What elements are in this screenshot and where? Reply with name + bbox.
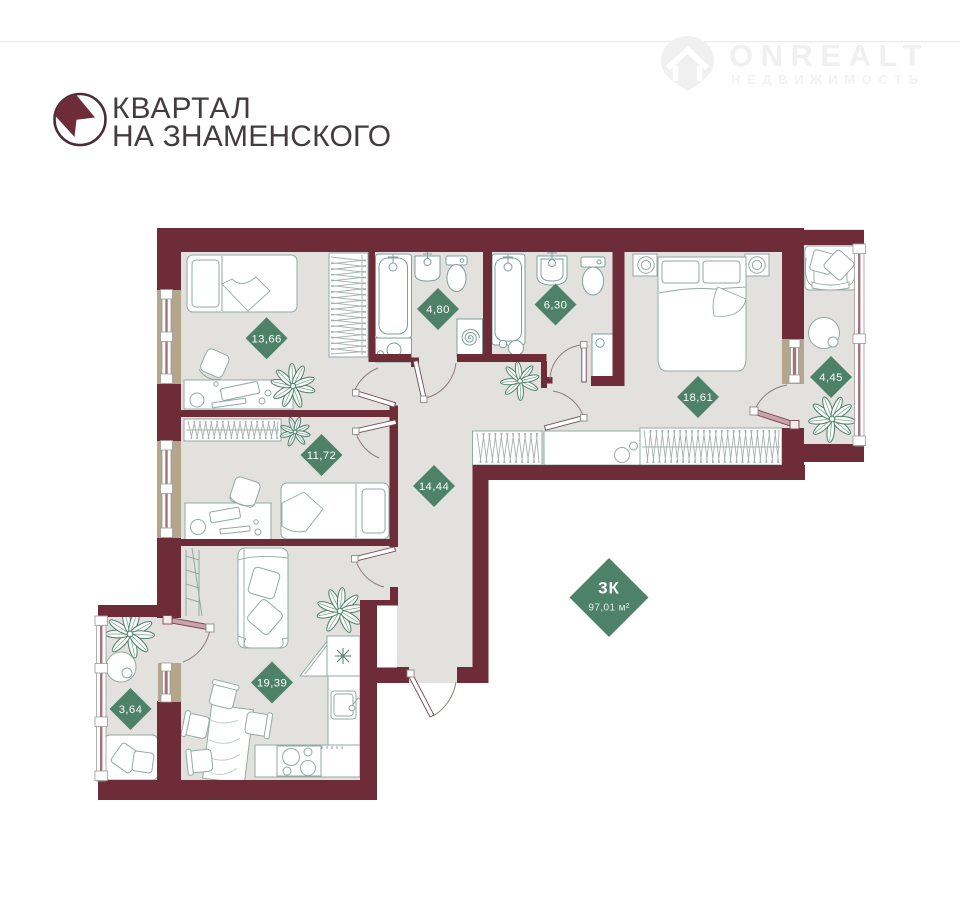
- svg-text:11,72: 11,72: [307, 450, 336, 462]
- svg-text:14,44: 14,44: [419, 481, 449, 493]
- svg-text:4,80: 4,80: [426, 304, 450, 316]
- svg-text:18,61: 18,61: [683, 392, 713, 404]
- svg-text:6,30: 6,30: [544, 299, 568, 311]
- svg-text:4,45: 4,45: [819, 372, 843, 384]
- svg-text:НА ЗНАМЕНСКОГО: НА ЗНАМЕНСКОГО: [112, 120, 391, 153]
- svg-text:3,64: 3,64: [119, 704, 143, 716]
- svg-text:3К: 3К: [598, 579, 620, 598]
- svg-text:97,01 м²: 97,01 м²: [588, 603, 629, 614]
- svg-text:19,39: 19,39: [257, 677, 287, 689]
- svg-text:13,66: 13,66: [251, 333, 281, 345]
- svg-text:ONREALT: ONREALT: [729, 38, 929, 73]
- svg-text:НЕДВИЖИМОСТЬ: НЕДВИЖИМОСТЬ: [731, 72, 925, 87]
